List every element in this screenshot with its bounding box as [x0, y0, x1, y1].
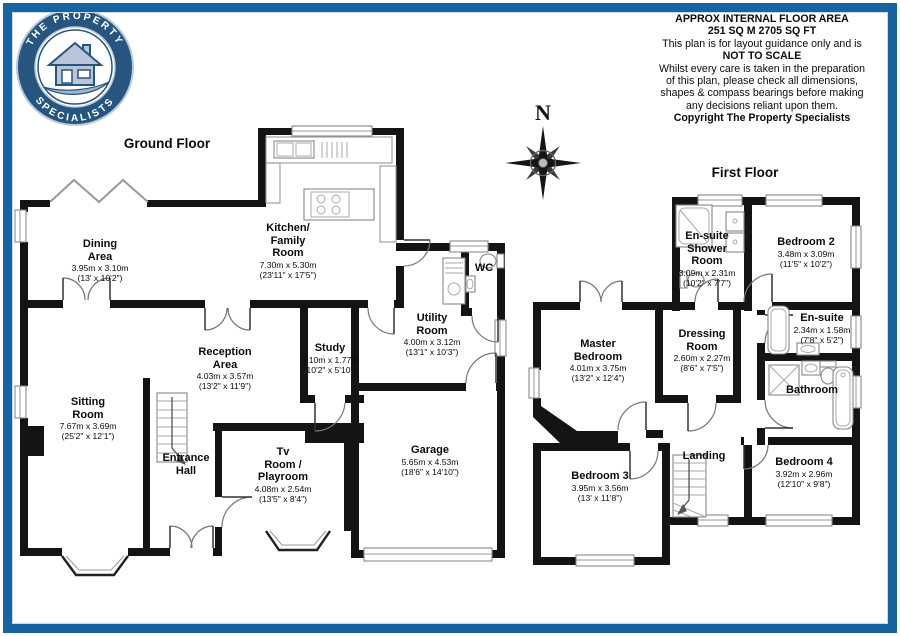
garage-door	[364, 548, 492, 561]
compass-north-label: N	[535, 100, 551, 125]
room-name: Bedroom 3	[571, 470, 628, 483]
room-dims-metric: 4.03m x 3.57m	[197, 371, 254, 381]
room-dims-imperial: (12'10" x 9'8")	[775, 479, 832, 489]
sitting-room-bay-window	[62, 556, 128, 575]
room-dims-metric: 3.95m x 3.56m	[571, 483, 628, 493]
disclaimer-line: any decisions reliant upon them.	[628, 100, 896, 112]
room-name: Dressing Room	[674, 328, 731, 353]
room-name: Kitchen/ Family Room	[260, 222, 317, 260]
room-dims-imperial: (11'5" x 10'2")	[777, 259, 834, 269]
room-label-bathroom: Bathroom	[786, 384, 838, 397]
room-dims-imperial: (7'8" x 5'2")	[794, 335, 851, 345]
disclaimer-line: NOT TO SCALE	[628, 50, 896, 62]
room-dims-imperial: (23'11" x 17'5")	[260, 270, 317, 280]
disclaimer-line: Copyright The Property Specialists	[628, 112, 896, 124]
disclaimer-line: of this plan, please check all dimension…	[628, 75, 896, 87]
property-specialists-logo: THE PROPERTY SPECIALISTS	[17, 9, 133, 125]
room-label-landing: Landing	[683, 450, 726, 463]
tv-room-bay-window	[266, 531, 330, 550]
room-dims-imperial: (13' x 10'2")	[72, 273, 129, 283]
bathroom-bath	[833, 367, 853, 429]
room-dims-metric: 3.92m x 2.96m	[775, 469, 832, 479]
room-label-bedroom-2: Bedroom 2 3.48m x 3.09m (11'5" x 10'2")	[777, 236, 834, 269]
room-label-dining-area: Dining Area 3.95m x 3.10m (13' x 10'2")	[72, 238, 129, 283]
room-name: Sitting Room	[60, 396, 117, 421]
room-label-bedroom-3: Bedroom 3 3.95m x 3.56m (13' x 11'8")	[571, 470, 628, 503]
room-dims-imperial: (10'2" x 5'10")	[302, 365, 359, 375]
first-staircase	[673, 455, 706, 517]
disclaimer-line: APPROX INTERNAL FLOOR AREA	[628, 13, 896, 25]
room-dims-imperial: (13'5" x 8'4")	[255, 494, 312, 504]
room-name: Bedroom 2	[777, 236, 834, 249]
room-name: Reception Area	[197, 346, 254, 371]
room-label-study: Study 3.10m x 1.77m (10'2" x 5'10")	[302, 342, 359, 375]
room-label-ensuite: En-suite 2.34m x 1.58m (7'8" x 5'2")	[794, 312, 851, 345]
room-name: Utility Room	[404, 312, 461, 337]
room-label-dressing-room: Dressing Room 2.60m x 2.27m (8'6" x 7'5"…	[674, 328, 731, 373]
first-floor-title: First Floor	[712, 165, 779, 180]
wc-basin	[466, 276, 475, 292]
room-dims-imperial: (25'2" x 12'1")	[60, 431, 117, 441]
room-dims-metric: 3.10m x 1.77m	[302, 355, 359, 365]
room-label-utility-room: Utility Room 4.00m x 3.12m (13'1" x 10'3…	[404, 312, 461, 357]
room-dims-metric: 5.65m x 4.53m	[401, 457, 459, 467]
open-wall-zigzag	[50, 180, 148, 202]
room-dims-imperial: (13' x 11'8")	[571, 493, 628, 503]
room-dims-metric: 4.00m x 3.12m	[404, 337, 461, 347]
room-label-sitting-room: Sitting Room 7.67m x 3.69m (25'2" x 12'1…	[60, 396, 117, 441]
room-name: Master Bedroom	[570, 338, 627, 363]
room-name: Landing	[683, 450, 726, 463]
room-name: Study	[302, 342, 359, 355]
room-dims-metric: 3.09m x 2.31m	[679, 268, 736, 278]
room-dims-metric: 2.34m x 1.58m	[794, 325, 851, 335]
ensuite-bath	[768, 306, 789, 354]
disclaimer-line: Whilst every care is taken in the prepar…	[628, 63, 896, 75]
room-name: Garage	[401, 444, 459, 457]
room-name: En-suite Shower Room	[679, 230, 736, 268]
chimney-breast	[28, 426, 44, 456]
room-dims-imperial: (10'2" x 7'7")	[679, 278, 736, 288]
room-dims-metric: 3.48m x 3.09m	[777, 249, 834, 259]
disclaimer-block: APPROX INTERNAL FLOOR AREA 251 SQ M 2705…	[628, 13, 896, 125]
room-name: Dining Area	[72, 238, 129, 263]
compass-icon: N	[505, 100, 581, 200]
room-name: En-suite	[794, 312, 851, 325]
room-dims-metric: 2.60m x 2.27m	[674, 353, 731, 363]
room-label-kitchen-family-room: Kitchen/ Family Room 7.30m x 5.30m (23'1…	[260, 222, 317, 280]
disclaimer-line: 251 SQ M 2705 SQ FT	[628, 25, 896, 37]
room-dims-imperial: (13'1" x 10'3")	[404, 347, 461, 357]
room-dims-imperial: (13'2" x 12'4")	[570, 373, 627, 383]
room-label-garage: Garage 5.65m x 4.53m (18'6" x 14'10")	[401, 444, 459, 477]
bathroom-basin	[802, 361, 820, 375]
room-dims-imperial: (18'6" x 14'10")	[401, 467, 459, 477]
room-label-entrance-hall: Entrance Hall	[162, 452, 209, 477]
disclaimer-line: shapes & compass bearings before making	[628, 87, 896, 99]
ground-floor-title: Ground Floor	[124, 136, 210, 151]
room-label-ensuite-shower-room: En-suite Shower Room 3.09m x 2.31m (10'2…	[679, 230, 736, 288]
room-label-master-bedroom: Master Bedroom 4.01m x 3.75m (13'2" x 12…	[570, 338, 627, 383]
room-name: Bathroom	[786, 384, 838, 397]
room-label-wc: WC	[475, 262, 493, 275]
utility-sink	[443, 258, 465, 304]
room-name: WC	[475, 262, 493, 275]
room-dims-metric: 7.67m x 3.69m	[60, 421, 117, 431]
room-label-tv-room-playroom: Tv Room / Playroom 4.08m x 2.54m (13'5" …	[255, 446, 312, 504]
kitchen-island-hob	[304, 189, 374, 220]
room-dims-metric: 4.01m x 3.75m	[570, 363, 627, 373]
disclaimer-line: This plan is for layout guidance only an…	[628, 38, 896, 50]
room-label-reception-area: Reception Area 4.03m x 3.57m (13'2" x 11…	[197, 346, 254, 391]
room-dims-imperial: (13'2" x 11'9")	[197, 381, 254, 391]
room-name: Bedroom 4	[775, 456, 832, 469]
room-label-bedroom-4: Bedroom 4 3.92m x 2.96m (12'10" x 9'8")	[775, 456, 832, 489]
room-dims-metric: 7.30m x 5.30m	[260, 260, 317, 270]
room-name: Tv Room / Playroom	[255, 446, 312, 484]
room-dims-metric: 3.95m x 3.10m	[72, 263, 129, 273]
room-dims-metric: 4.08m x 2.54m	[255, 484, 312, 494]
room-dims-imperial: (8'6" x 7'5")	[674, 363, 731, 373]
room-name: Entrance Hall	[162, 452, 209, 477]
